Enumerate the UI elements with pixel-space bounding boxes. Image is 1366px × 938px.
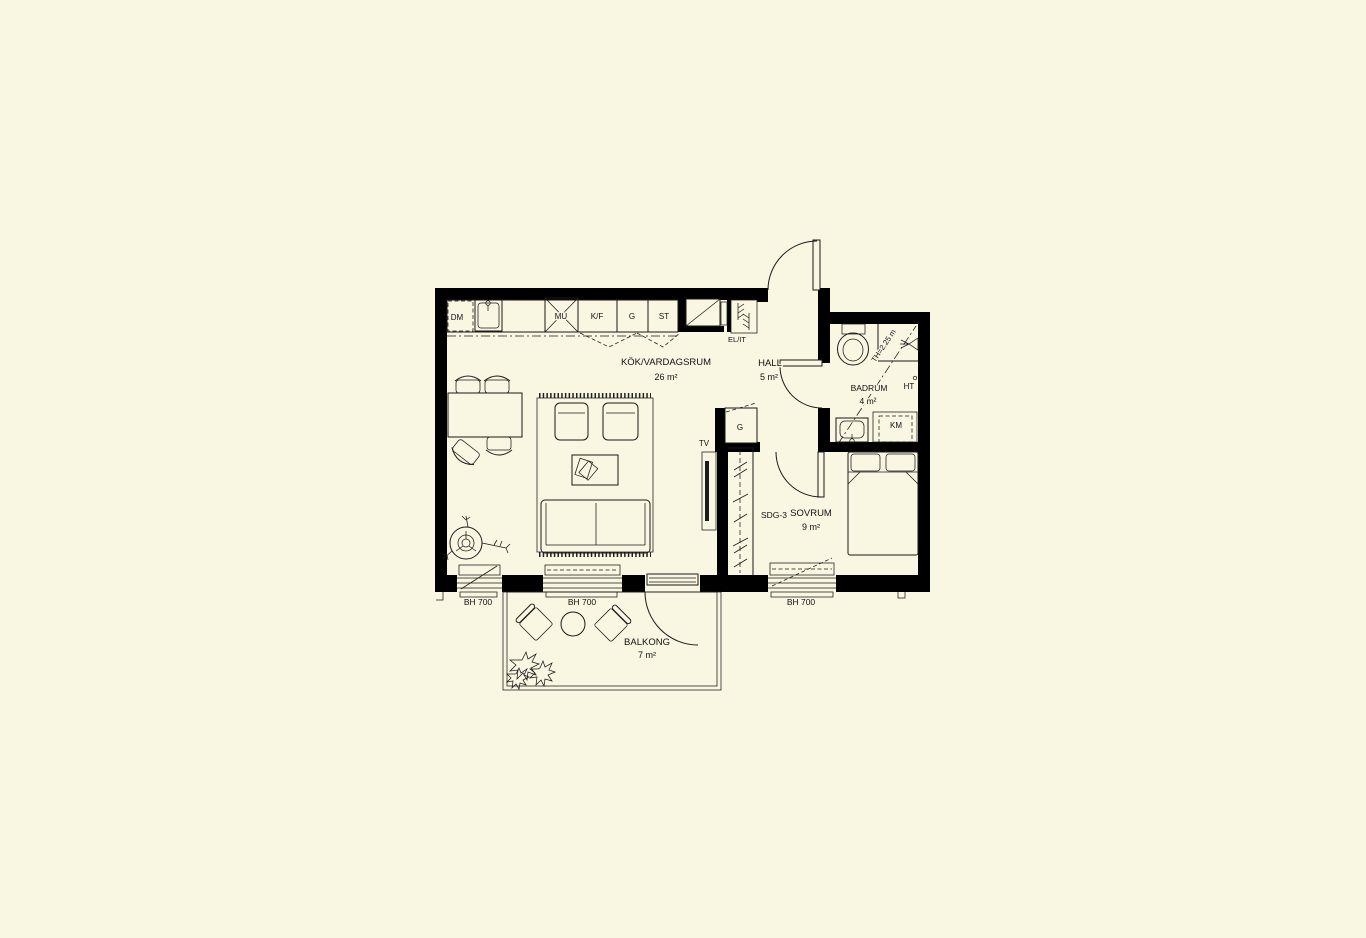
room-area-hall: 5 m² — [760, 372, 778, 382]
label-sill-height-3: BH 700 — [787, 597, 816, 607]
label-microwave: MU — [555, 312, 568, 321]
label-hall-wardrobe: G — [737, 423, 743, 432]
label-tv: TV — [699, 439, 710, 448]
floor-plan-page: KÖK/VARDAGSRUM 26 m² HALL 5 m² BADRUM 4 … — [0, 0, 1366, 938]
label-kitchen-cabinet: G — [629, 312, 635, 321]
room-area-balcony: 7 m² — [638, 650, 656, 660]
floor-plan-drawing: KÖK/VARDAGSRUM 26 m² HALL 5 m² BADRUM 4 … — [0, 0, 1366, 938]
page-background — [0, 0, 1366, 938]
room-area-bathroom: 4 m² — [860, 396, 877, 406]
room-label-hall: HALL — [758, 358, 782, 369]
label-sill-height-1: BH 700 — [464, 597, 493, 607]
label-dishwasher: DM — [451, 313, 464, 322]
shaft-symbol — [686, 299, 727, 326]
room-area-bedroom: 9 m² — [802, 522, 820, 532]
label-el-it: EL/IT — [728, 335, 746, 344]
room-area-kitchen-living: 26 m² — [654, 372, 677, 382]
room-label-balcony: BALKONG — [624, 637, 670, 648]
room-label-bedroom: SOVRUM — [790, 508, 832, 519]
room-label-bathroom: BADRUM — [851, 383, 888, 393]
label-washing-machine: KM — [890, 421, 902, 430]
label-fridge-freezer: K/F — [591, 312, 604, 321]
label-sliding-glass-door: SDG-3 — [761, 510, 787, 520]
label-cleaning-cabinet: ST — [659, 312, 669, 321]
room-label-kitchen-living: KÖK/VARDAGSRUM — [621, 357, 711, 368]
label-sill-height-2: BH 700 — [568, 597, 597, 607]
label-towel-dryer: HT — [904, 382, 915, 391]
